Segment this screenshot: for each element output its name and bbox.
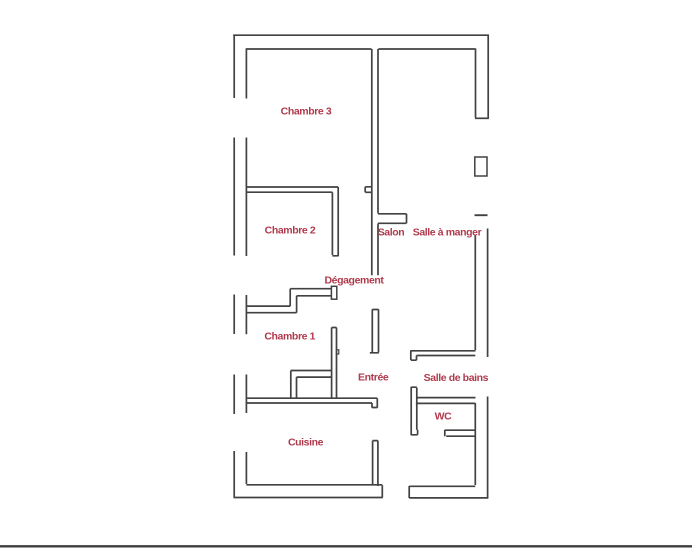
svg-text:Cuisine: Cuisine: [288, 436, 324, 448]
svg-text:Chambre 2: Chambre 2: [265, 225, 316, 237]
svg-text:WC: WC: [435, 410, 453, 422]
svg-text:Chambre 1: Chambre 1: [264, 331, 315, 343]
svg-text:Salle à manger: Salle à manger: [413, 227, 482, 239]
svg-text:Salle de bains: Salle de bains: [424, 372, 489, 384]
svg-text:Chambre 3: Chambre 3: [281, 106, 332, 118]
svg-text:Salon: Salon: [378, 227, 405, 239]
svg-text:Dégagement: Dégagement: [324, 274, 384, 286]
svg-text:Entrée: Entrée: [358, 371, 389, 383]
